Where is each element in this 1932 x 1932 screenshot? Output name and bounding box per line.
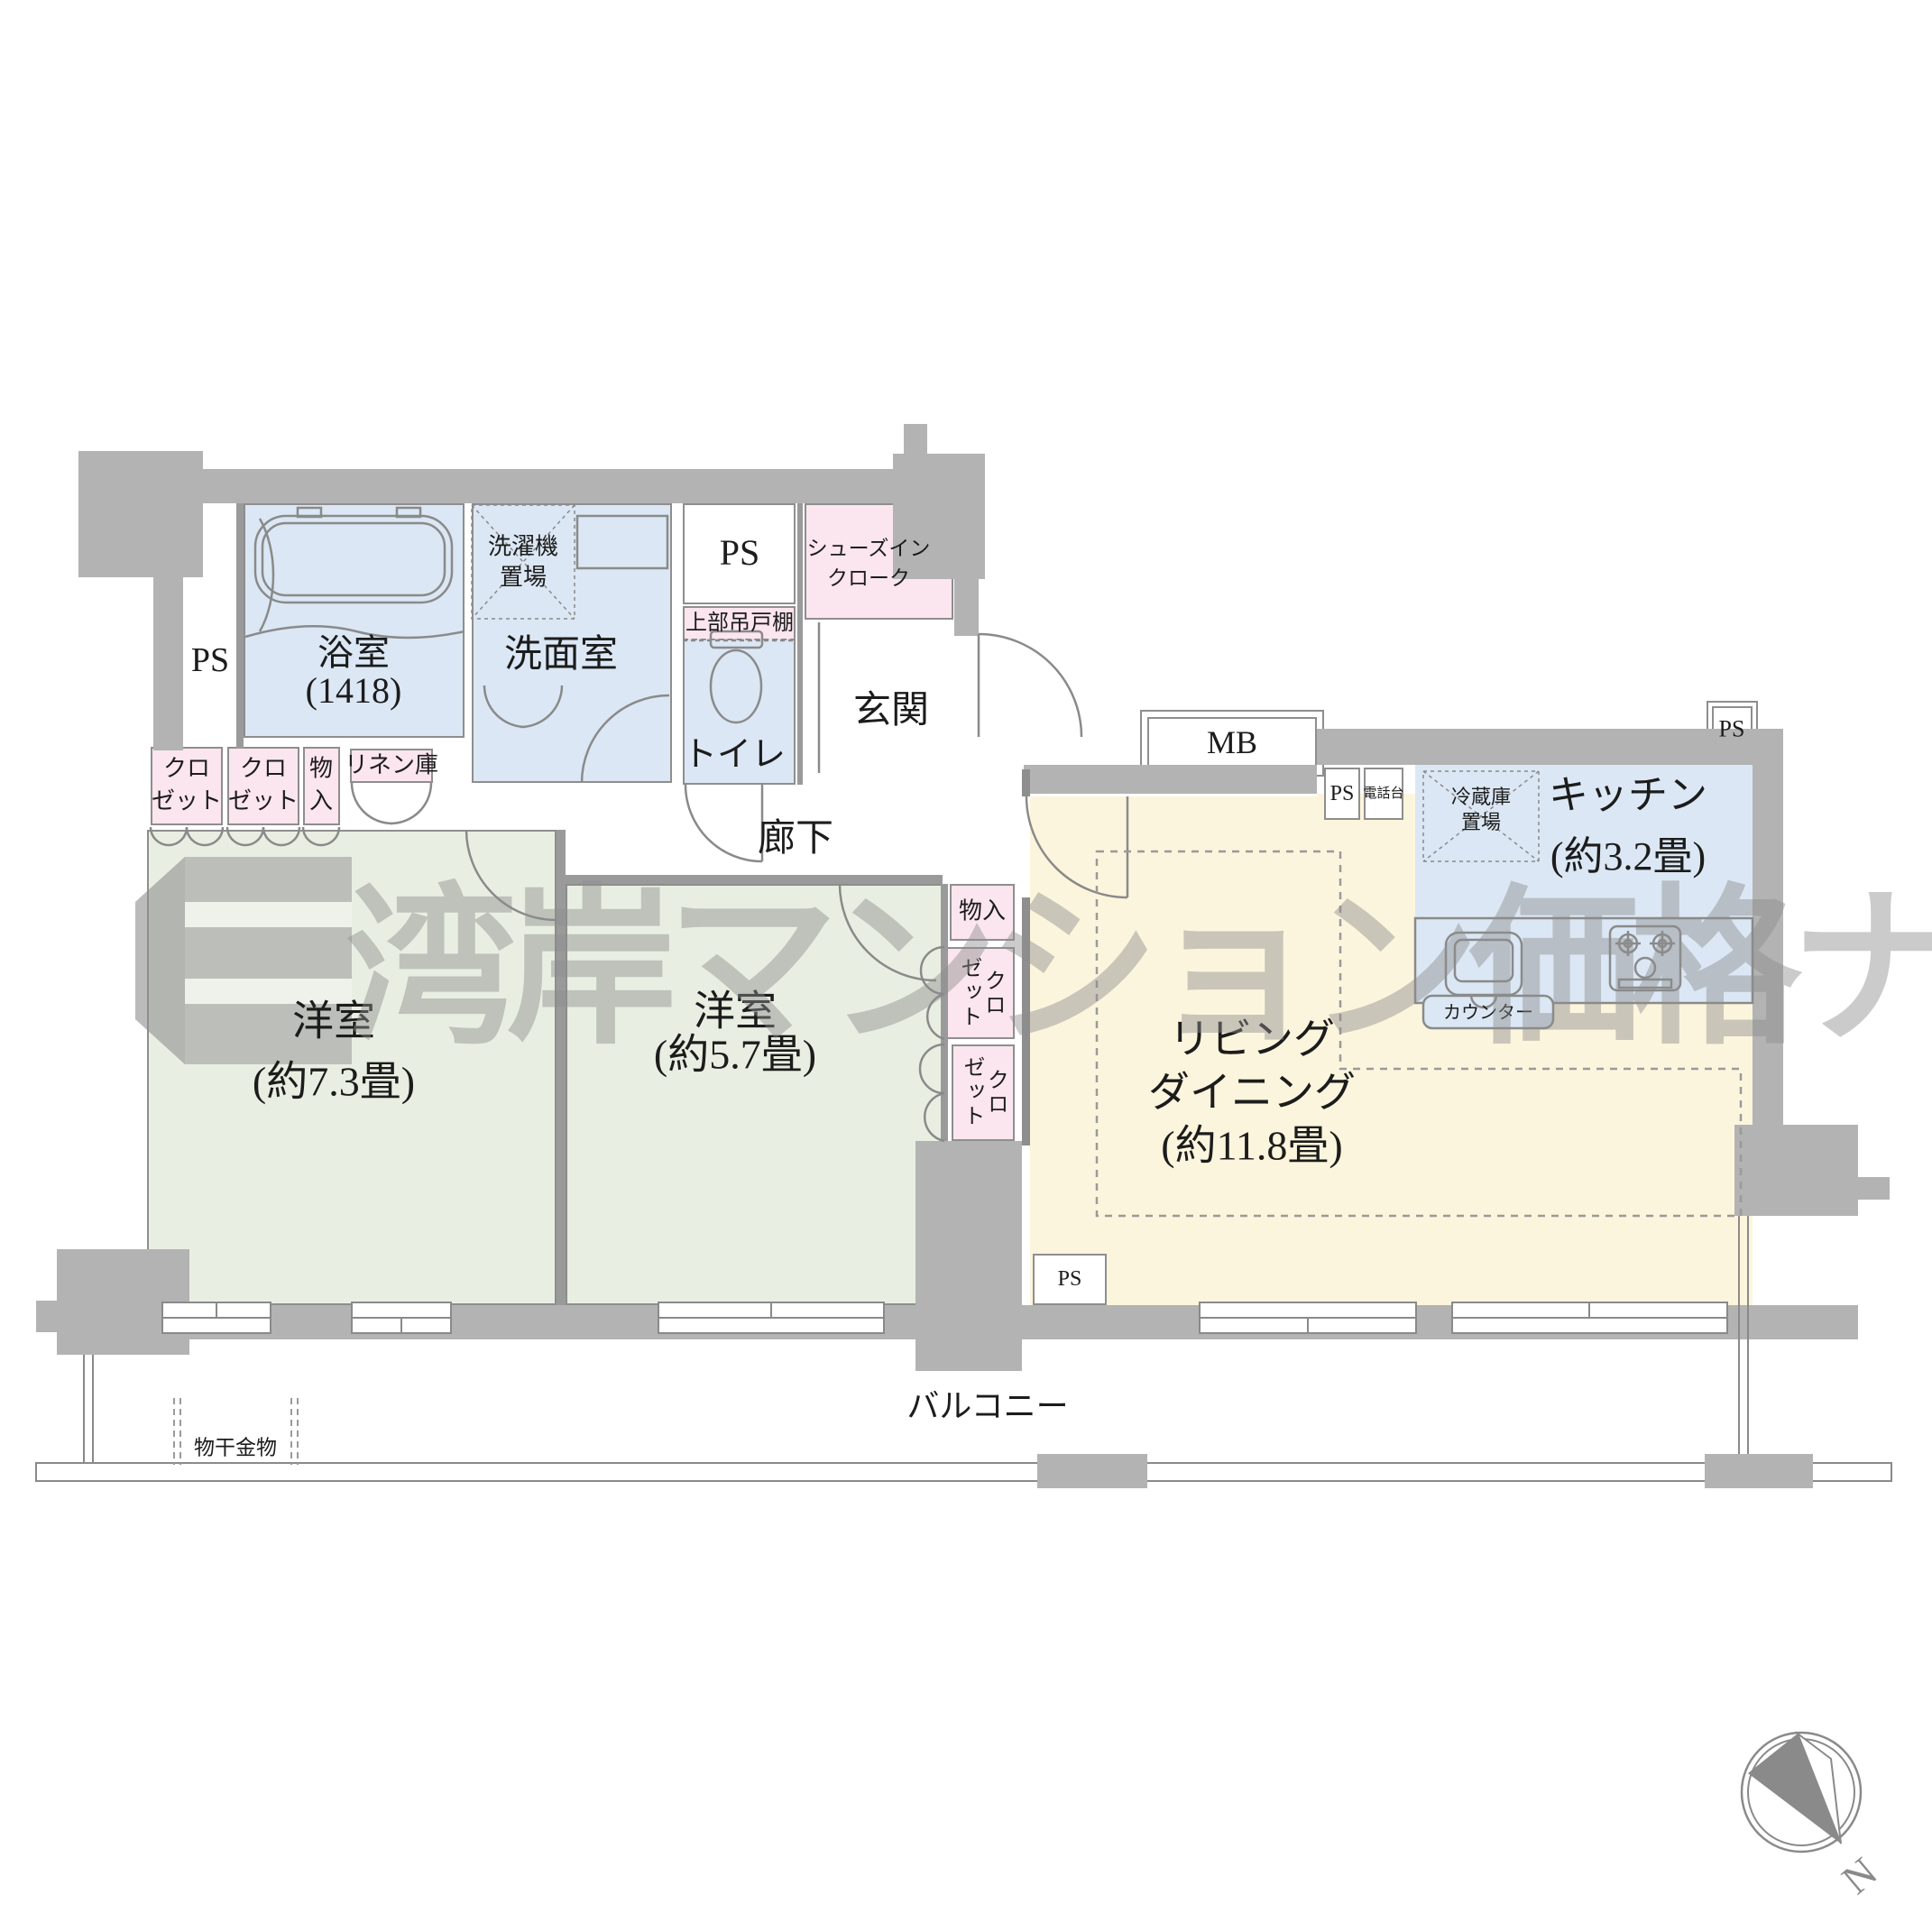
label-entrance: 玄関 — [853, 690, 929, 731]
label-closet-col-b: クロ ゼット — [960, 1056, 1007, 1129]
closet-row-door-arcs — [151, 827, 339, 845]
label-closet-row2-b: ゼット — [228, 789, 299, 815]
toilet-door-arc — [685, 785, 762, 861]
label-closet-row1-a: クロ — [163, 757, 210, 783]
label-ps-ld: PS — [1058, 1267, 1082, 1291]
label-laundry-hanger: 物干金物 — [194, 1436, 277, 1458]
label-closet-row2-a: クロ — [240, 757, 287, 783]
window-bedroom1-a — [162, 1302, 271, 1333]
label-storage-row-b: 入 — [309, 789, 333, 815]
rail-block-a — [1037, 1454, 1147, 1488]
compass-icon — [1742, 1733, 1861, 1852]
floorplan-canvas: PS 浴室 (1418) 洗濯機 置場 洗面室 PS 上部吊戸棚 トイレ シュー… — [0, 0, 1932, 1932]
label-cabinet: 上部吊戸棚 — [685, 612, 794, 635]
bathtub-icon — [245, 508, 465, 638]
label-washer-2: 置場 — [500, 566, 547, 592]
label-bath-name: 浴室 — [317, 633, 390, 673]
washroom-door-arc — [582, 695, 669, 783]
label-washroom: 洗面室 — [504, 634, 618, 676]
front-door-arc — [979, 634, 1081, 737]
label-linen: リネン庫 — [345, 753, 438, 779]
label-hallway: 廊下 — [758, 818, 833, 860]
window-living-a — [1200, 1302, 1416, 1333]
label-balcony: バルコニー — [906, 1389, 1068, 1425]
window-living-b — [1452, 1302, 1727, 1333]
rail-block-b — [1705, 1454, 1813, 1488]
label-shoe-closet-2: クローク — [827, 566, 910, 589]
label-ps-nook: PS — [191, 642, 229, 680]
label-storage-row-a: 物 — [309, 757, 333, 783]
label-bedroom1-size: (約7.3畳) — [253, 1060, 415, 1106]
balcony-rail — [36, 1216, 1891, 1481]
label-living-2: ダイニング — [1148, 1071, 1356, 1117]
label-ps-toilet: PS — [720, 533, 760, 573]
label-bath-size: (1418) — [306, 671, 402, 711]
label-fridge-2: 置場 — [1461, 812, 1501, 833]
label-mb: MB — [1207, 725, 1257, 761]
window-bedroom1-b — [352, 1302, 451, 1333]
label-kitchen-name: キッチン — [1549, 774, 1707, 817]
linen-double-door-arc — [352, 783, 431, 823]
watermark-text: 湾岸マンション価格ナビ — [345, 879, 1932, 1060]
label-living-3: (約11.8畳) — [1161, 1124, 1342, 1170]
toilet-icon — [711, 631, 762, 722]
window-bedroom2 — [658, 1302, 884, 1333]
washer-area-icon — [472, 505, 575, 619]
label-toilet: トイレ — [683, 737, 786, 775]
label-kitchen-size: (約3.2畳) — [1550, 835, 1706, 879]
washroom-double-door-arc — [484, 685, 562, 727]
label-phone: 電話台 — [1363, 787, 1403, 802]
vanity-icon — [577, 516, 667, 568]
windows — [162, 1302, 1727, 1333]
label-shoe-closet-1: シューズイン — [807, 537, 931, 559]
label-fridge-1: 冷蔵庫 — [1451, 787, 1511, 808]
label-washer-1: 洗濯機 — [488, 535, 558, 561]
label-ps-kitchen-left: PS — [1330, 782, 1355, 805]
label-closet-row1-b: ゼット — [152, 789, 222, 815]
label-ps-kitchen-right: PS — [1719, 717, 1745, 743]
